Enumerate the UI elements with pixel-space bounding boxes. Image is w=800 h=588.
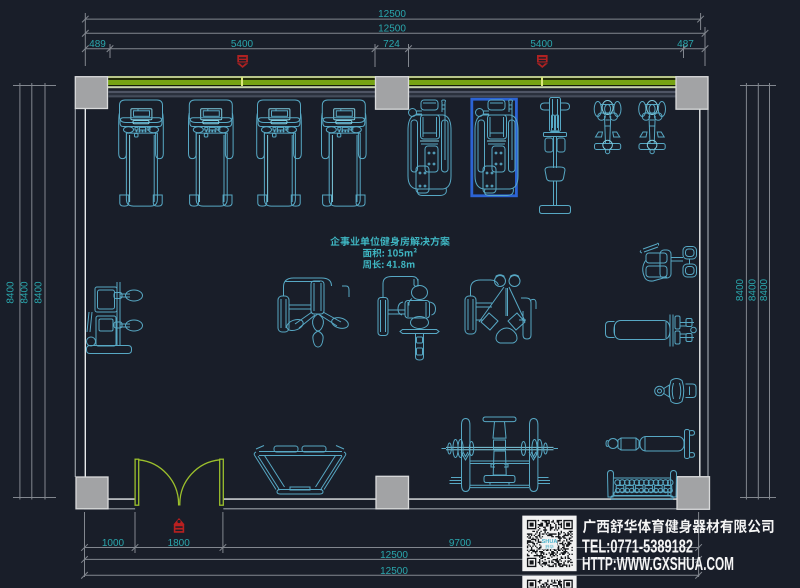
svg-text:8400: 8400: [759, 278, 770, 301]
svg-text:12500: 12500: [380, 550, 408, 561]
svg-text:12500: 12500: [378, 24, 406, 35]
svg-text:HTTP:WWW.GXSHUA.COM: HTTP:WWW.GXSHUA.COM: [582, 553, 734, 574]
svg-text:8400: 8400: [735, 278, 746, 301]
svg-text:1800: 1800: [168, 538, 191, 549]
svg-text:489: 489: [89, 39, 106, 50]
svg-text:724: 724: [383, 39, 400, 50]
svg-text:5400: 5400: [530, 39, 553, 50]
svg-text:SHUA: SHUA: [542, 539, 558, 545]
svg-text:9700: 9700: [449, 538, 472, 549]
svg-text:8400: 8400: [20, 281, 31, 304]
svg-text:12500: 12500: [378, 9, 406, 20]
svg-text:12500: 12500: [380, 566, 408, 577]
svg-text:5400: 5400: [231, 39, 254, 50]
svg-text:487: 487: [677, 39, 694, 50]
svg-text:8400: 8400: [34, 281, 45, 304]
svg-text:1000: 1000: [102, 538, 125, 549]
svg-text:8400: 8400: [748, 278, 759, 301]
svg-text:8400: 8400: [5, 281, 16, 304]
